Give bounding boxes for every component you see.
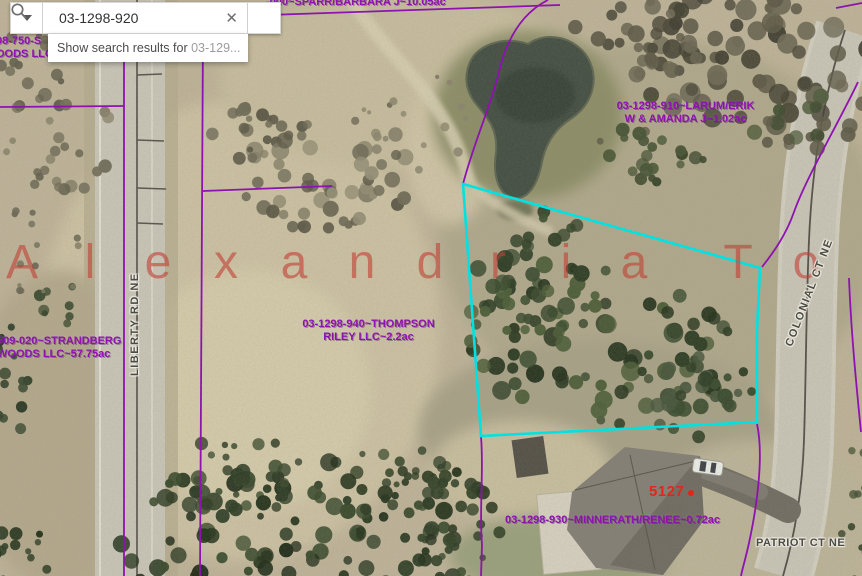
map-canvas[interactable]: Alexandria To -000~SPARR/BARBARA J~10.05… xyxy=(0,0,862,576)
suggestion-query: 03-129... xyxy=(191,41,240,55)
imagery-noise xyxy=(0,0,862,576)
search-input[interactable] xyxy=(57,9,222,27)
suggestion-prefix: Show search results for xyxy=(57,41,191,55)
clear-search-icon[interactable]: ✕ xyxy=(222,11,241,26)
search-input-wrap: ✕ xyxy=(43,2,247,34)
search-button[interactable] xyxy=(247,2,281,34)
aerial-imagery xyxy=(0,0,862,576)
magnifier-icon xyxy=(10,2,28,20)
search-suggestion[interactable]: Show search results for 03-129... xyxy=(48,34,248,62)
search-widget: ✕ xyxy=(10,2,281,34)
